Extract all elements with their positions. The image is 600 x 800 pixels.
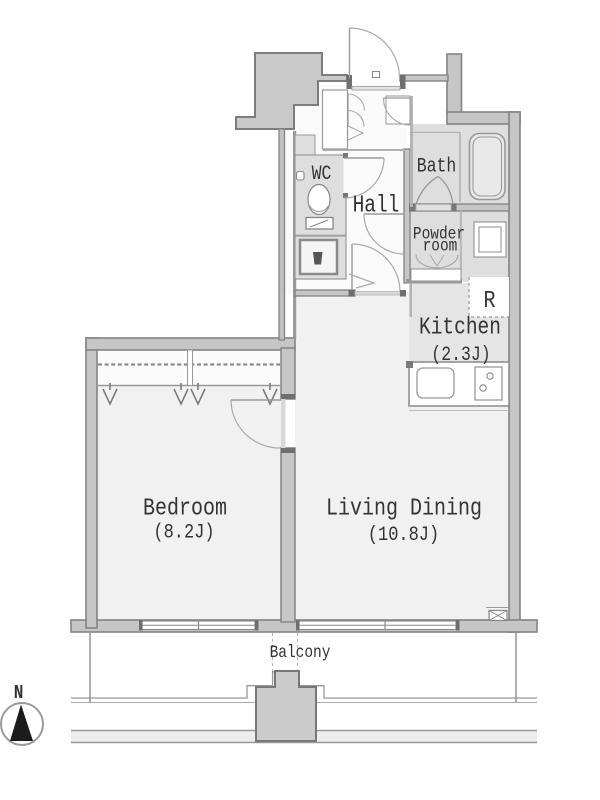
svg-text:Living Dining: Living Dining (326, 494, 482, 522)
svg-text:(2.3J): (2.3J) (431, 344, 490, 367)
svg-text:(8.2J): (8.2J) (153, 520, 214, 544)
svg-text:Bath: Bath (417, 155, 457, 178)
svg-text:N: N (14, 683, 24, 705)
svg-text:Balcony: Balcony (270, 643, 331, 663)
svg-text:(10.8J): (10.8J) (368, 522, 439, 546)
svg-text:WC: WC (312, 163, 332, 186)
svg-text:room: room (423, 236, 458, 256)
svg-text:Hall: Hall (353, 192, 400, 219)
svg-text:Bedroom: Bedroom (143, 494, 227, 522)
svg-text:Kitchen: Kitchen (419, 314, 501, 341)
svg-text:R: R (483, 286, 495, 314)
